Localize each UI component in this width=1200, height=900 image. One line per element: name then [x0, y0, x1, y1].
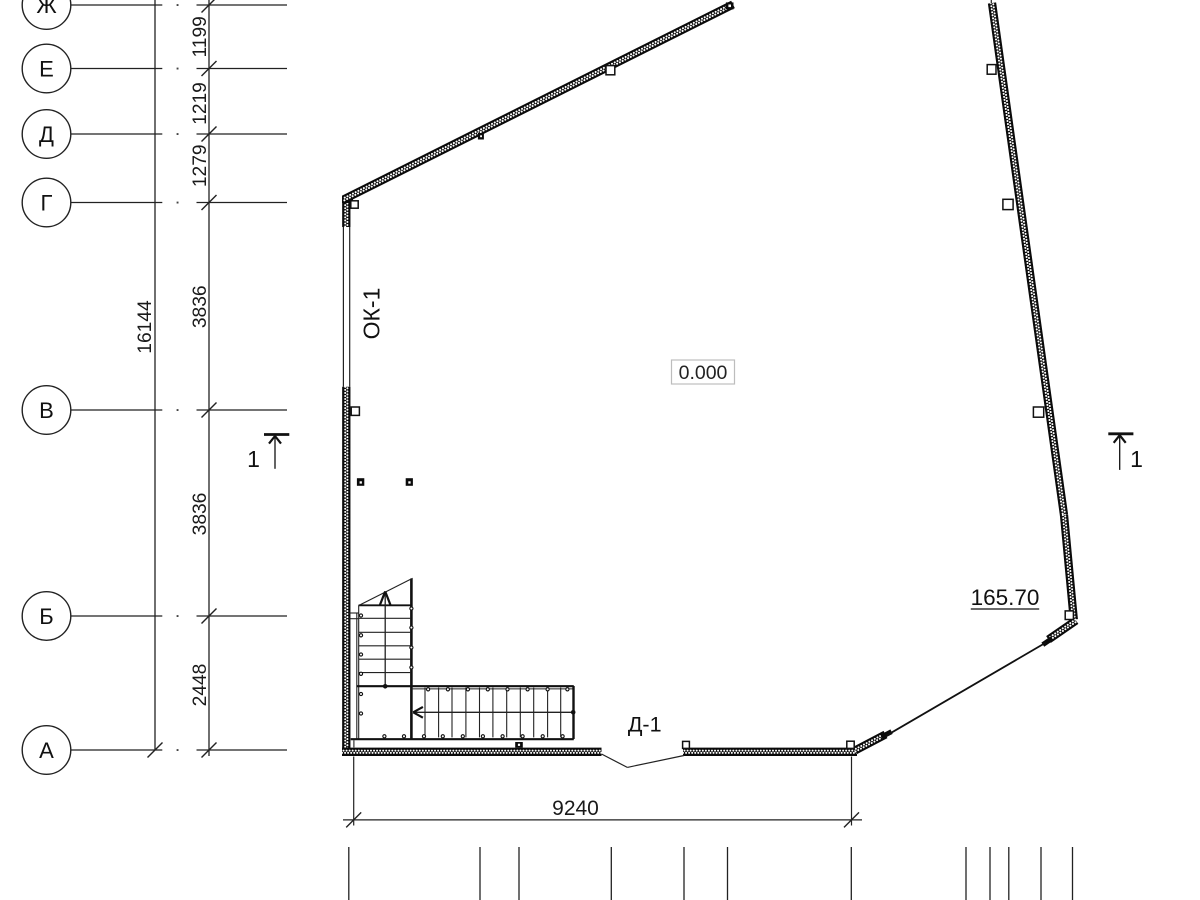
svg-text:Д: Д — [39, 122, 54, 147]
svg-text:0.000: 0.000 — [679, 362, 728, 384]
svg-text:ОК-1: ОК-1 — [359, 288, 385, 340]
svg-text:1199: 1199 — [190, 16, 211, 57]
svg-text:В: В — [39, 398, 54, 423]
svg-text:1: 1 — [1130, 446, 1143, 472]
svg-text:Д-1: Д-1 — [628, 713, 662, 737]
svg-text:2448: 2448 — [190, 664, 211, 707]
svg-text:3836: 3836 — [190, 493, 211, 536]
svg-text:1279: 1279 — [190, 144, 211, 187]
svg-text:Б: Б — [39, 604, 53, 629]
svg-text:1: 1 — [247, 446, 260, 472]
svg-text:1219: 1219 — [190, 82, 211, 125]
svg-text:Г: Г — [41, 190, 53, 215]
svg-text:16144: 16144 — [135, 300, 156, 354]
svg-text:Ж: Ж — [36, 0, 57, 18]
svg-text:А: А — [39, 738, 54, 763]
svg-text:3836: 3836 — [190, 285, 211, 328]
svg-text:165.70: 165.70 — [971, 585, 1040, 610]
svg-text:9240: 9240 — [552, 797, 599, 820]
svg-text:Е: Е — [39, 56, 54, 81]
